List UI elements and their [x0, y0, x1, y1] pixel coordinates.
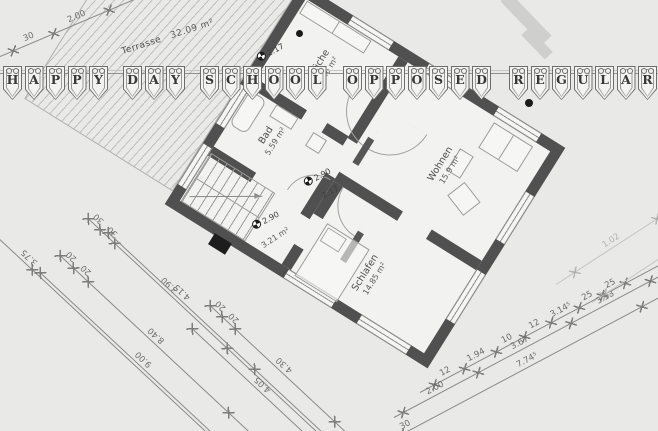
- dimension-label: 30: [398, 418, 412, 431]
- banner-flag: A: [617, 66, 636, 100]
- banner-letter: P: [46, 72, 65, 87]
- dimension-tick: [651, 213, 658, 225]
- furniture-divider: [498, 135, 514, 159]
- banner-letter: S: [429, 72, 448, 87]
- banner-letter: G: [552, 72, 571, 87]
- dimension-tick: [82, 275, 95, 288]
- banner-flag: A: [145, 66, 164, 100]
- banner-letter: C: [222, 72, 241, 87]
- banner-letter: H: [243, 72, 262, 87]
- dimension-label: 20: [214, 298, 229, 313]
- banner-flag: G: [552, 66, 571, 100]
- banner-letter: A: [145, 72, 164, 87]
- banner-flag: E: [531, 66, 550, 100]
- dimension-line: 4.05: [192, 328, 376, 431]
- banner-flag: H: [3, 66, 22, 100]
- banner-letter: Y: [89, 72, 108, 87]
- banner-flag: S: [429, 66, 448, 100]
- dimension-tick: [229, 323, 242, 336]
- dimension-line: 3.75: [0, 228, 237, 431]
- dimension-label: 20: [227, 310, 242, 325]
- banner-flag: O: [343, 66, 362, 100]
- dimension-label: 12: [438, 365, 452, 379]
- dimension-tick: [67, 262, 80, 275]
- banner-flag: S: [200, 66, 219, 100]
- dimension-tick: [644, 275, 656, 287]
- banner-flag: C: [222, 66, 241, 100]
- banner-flag: A: [25, 66, 44, 100]
- banner-flag: O: [286, 66, 305, 100]
- dimension-tick: [472, 367, 484, 379]
- banner-flag: P: [386, 66, 405, 100]
- banner-letter: P: [365, 72, 384, 87]
- banner-letter: L: [308, 72, 327, 87]
- banner-letter: R: [638, 72, 657, 87]
- dimension-label: 8.40: [146, 325, 167, 345]
- dimension-label: 3.14⁵: [549, 301, 573, 320]
- dimension-label: 12: [527, 317, 541, 331]
- dimension-tick: [328, 415, 341, 428]
- dimension-tick: [222, 406, 235, 419]
- banner-letter: A: [617, 72, 636, 87]
- dimension-tick: [569, 266, 581, 278]
- dimension-label: 20: [79, 262, 94, 277]
- dimension-label: 7.74⁵: [515, 351, 539, 370]
- banner-flag: O: [265, 66, 284, 100]
- dimension-tick: [459, 363, 471, 375]
- stair-landing-line: [196, 177, 259, 217]
- dimension-label: 20: [64, 249, 79, 264]
- banner-flag: Y: [89, 66, 108, 100]
- banner-letter: O: [265, 72, 284, 87]
- banner-flag: R: [638, 66, 657, 100]
- dimension-tick: [490, 346, 502, 358]
- banner-letter: E: [531, 72, 550, 87]
- banner-flag: O: [408, 66, 427, 100]
- banner-letter: H: [3, 72, 22, 87]
- dimension-tick: [565, 317, 577, 329]
- banner-letter: L: [595, 72, 614, 87]
- banner-flag: P: [46, 66, 65, 100]
- banner-flag: P: [365, 66, 384, 100]
- pennant-banner: HAPPYDAYSCHOOLOPPOSEDREGULAR: [0, 0, 658, 120]
- banner-letter: O: [343, 72, 362, 87]
- banner-flag: D: [123, 66, 142, 100]
- banner-flag: E: [451, 66, 470, 100]
- dimension-label: 3.75: [19, 247, 40, 267]
- banner-letter: S: [200, 72, 219, 87]
- banner-flag: H: [243, 66, 262, 100]
- banner-letter: O: [286, 72, 305, 87]
- dimension-tick: [186, 322, 199, 335]
- banner-flag: R: [509, 66, 528, 100]
- dimension-label: 1.94: [465, 346, 486, 364]
- banner-flag: D: [472, 66, 491, 100]
- dimension-tick: [636, 301, 648, 313]
- banner-letter: D: [472, 72, 491, 87]
- banner-letter: U: [574, 72, 593, 87]
- dimension-label: 4.05: [253, 374, 274, 394]
- dimension-label: 1.02: [601, 232, 622, 251]
- banner-letter: P: [68, 72, 87, 87]
- banner-flag: U: [574, 66, 593, 100]
- banner-letter: A: [25, 72, 44, 87]
- banner-letter: O: [408, 72, 427, 87]
- banner-flag: L: [595, 66, 614, 100]
- banner-letter: D: [123, 72, 142, 87]
- banner-letter: P: [386, 72, 405, 87]
- dimension-label: 30: [92, 211, 107, 226]
- banner-flag: L: [308, 66, 327, 100]
- banner-letter: Y: [166, 72, 185, 87]
- banner-flag: P: [68, 66, 87, 100]
- banner-letter: E: [451, 72, 470, 87]
- dimension-label: 4.30: [274, 355, 295, 375]
- banner-flag: Y: [166, 66, 185, 100]
- floor-plan-screenshot: Terrasse 32.09 m²Küche6.6 m²Bad5.59 m²Wo…: [0, 0, 658, 431]
- stair-direction-arrow: [189, 196, 262, 197]
- banner-letter: R: [509, 72, 528, 87]
- dimension-tick: [573, 302, 585, 314]
